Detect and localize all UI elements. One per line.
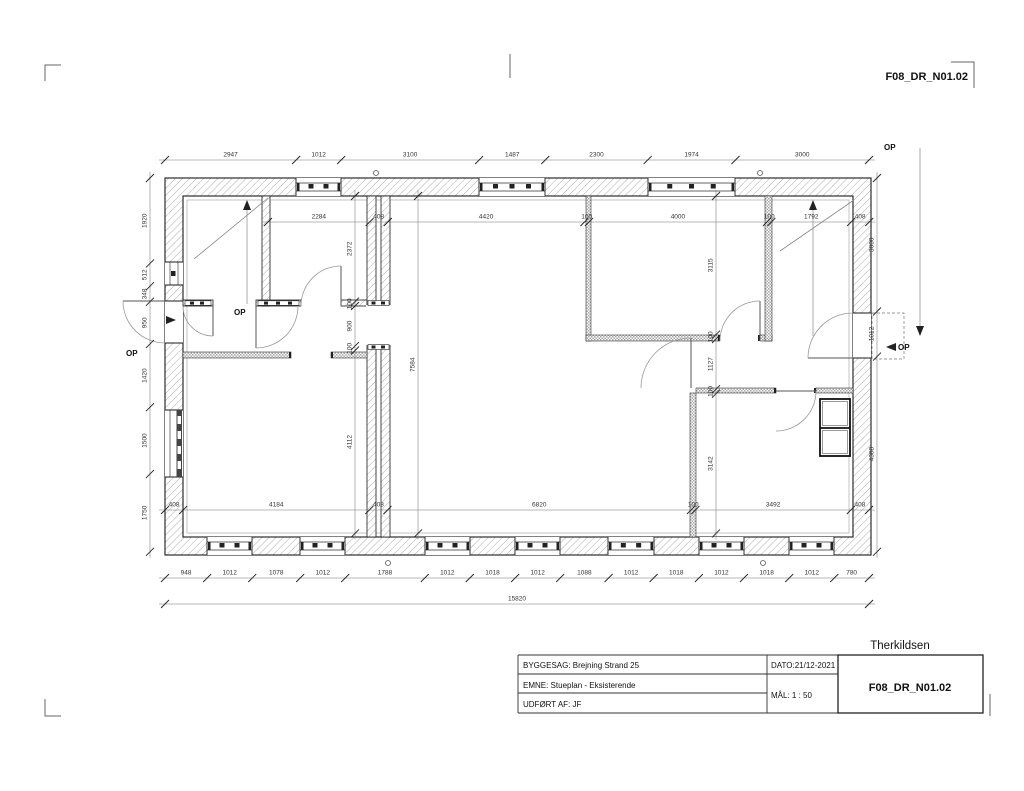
- window: [300, 537, 345, 555]
- reference-circle: [386, 561, 391, 566]
- dim-label-left_outer-0: 1920: [142, 213, 149, 228]
- op-label-left-entry: OP: [126, 349, 138, 358]
- dim-label-left_inner-2: 900: [347, 320, 354, 331]
- dim-label-right_inner-3: 100: [708, 386, 715, 397]
- drawing-number-top: F08_DR_N01.02: [885, 71, 968, 83]
- dim-label-bottom_inner-1: 4184: [269, 502, 284, 509]
- dim-chain-bottom_outer: 9481012107810121788101210181012108810121…: [159, 570, 875, 583]
- dim-label-top_inner-6: 1792: [804, 214, 819, 221]
- dim-label-top_inner-3: 100: [581, 214, 592, 221]
- title-block: Therkildsen BYGGESAG: Brejning Strand 25…: [518, 640, 983, 713]
- reference-circle: [761, 561, 766, 566]
- dim-label-left_outer-2: 348: [142, 288, 149, 299]
- dim-label-right_outer-2: 4388: [869, 447, 876, 462]
- reference-circle: [374, 171, 379, 176]
- dim-label-bottom_inner-2: 408: [373, 502, 384, 509]
- reference-circle: [758, 171, 763, 176]
- dim-label-top_outer-0: 2947: [223, 152, 238, 159]
- window: [608, 537, 654, 555]
- dim-label-bottom_outer-4: 1788: [378, 570, 393, 577]
- company-name: Therkildsen: [870, 640, 929, 652]
- dim-label-right_outer-0: 3000: [869, 237, 876, 252]
- dim-label-bottom_outer-0: 948: [181, 570, 192, 577]
- dim-label-bottom_outer-2: 1078: [269, 570, 284, 577]
- dim-label-bottom_outer-3: 1012: [315, 570, 330, 577]
- dim-label-bottom_outer-8: 1088: [577, 570, 592, 577]
- dim-label-top_inner-4: 4000: [671, 214, 686, 221]
- dim-label-bottom_inner-4: 100: [688, 502, 699, 509]
- dim-label-bottom_outer-12: 1018: [759, 570, 774, 577]
- dim-label-bottom_inner-0: 408: [169, 502, 180, 509]
- dim-label-top_inner-5: 100: [764, 214, 775, 221]
- op-label-left-stair: OP: [234, 308, 246, 317]
- dim-label-bottom_inner-3: 6820: [532, 502, 547, 509]
- dim-label-right_inner-0: 3115: [708, 258, 715, 272]
- floor-plan-svg: 2947101231001487230019743000228440844201…: [0, 0, 1024, 791]
- op-label-exterior-stair: OP: [884, 143, 896, 152]
- dim-label-right_inner-4: 3142: [708, 456, 715, 471]
- interior-heavy-walls: [183, 196, 391, 537]
- dim-label-left_outer-5: 1500: [142, 433, 149, 448]
- window: [296, 178, 341, 196]
- window: [425, 537, 470, 555]
- project-field: BYGGESAG: Brejning Strand 25: [523, 661, 640, 670]
- dim-label-left_inner-4: 4112: [347, 435, 354, 449]
- dim-label-top_outer-1: 1012: [311, 152, 326, 159]
- dim-label-right_inner-1: 100: [708, 331, 715, 342]
- scale-field: MÅL: 1 : 50: [771, 691, 812, 700]
- dim-label-right_inner-2: 1127: [708, 357, 715, 371]
- dim-label-bottom_outer-9: 1012: [624, 570, 639, 577]
- dim-label-top_outer-6: 3000: [795, 152, 810, 159]
- central-wall-opening: [366, 305, 391, 345]
- drawing-sheet: 2947101231001487230019743000228440844201…: [0, 0, 1024, 791]
- dim-chain-top_outer: 2947101231001487230019743000: [159, 152, 875, 165]
- dim-label-bottom_outer-11: 1012: [714, 570, 729, 577]
- dim-label-left_outer-6: 1750: [142, 505, 149, 520]
- dim-label-top_outer-4: 2300: [589, 152, 604, 159]
- subject-field: EMNE: Stueplan - Eksisterende: [523, 681, 636, 690]
- dim-label-bottom_outer-5: 1012: [440, 570, 455, 577]
- interior-light-walls: [183, 196, 853, 537]
- window: [789, 537, 834, 555]
- dim-label-left_outer-1: 512: [142, 269, 149, 280]
- dim-label-hall_depth-0: 7584: [410, 357, 417, 372]
- dim-chain-bottom_inner: 408418440868201003492408: [159, 502, 875, 515]
- dim-chain-bottom_total: 15820: [159, 596, 875, 609]
- dim-label-bottom_total-0: 15820: [508, 596, 526, 603]
- dim-label-top_inner-1: 408: [373, 214, 384, 221]
- dim-label-left_outer-3: 950: [142, 317, 149, 328]
- dim-label-bottom_inner-5: 3492: [766, 502, 781, 509]
- dim-label-bottom_outer-10: 1018: [669, 570, 684, 577]
- dim-label-left_inner-1: 100: [347, 298, 354, 309]
- stair-up-arrow-right: [809, 200, 817, 210]
- dim-label-top_outer-2: 3100: [403, 152, 418, 159]
- stair-up-arrow-left: [243, 200, 251, 210]
- author-field: UDFØRT AF: JF: [523, 700, 581, 709]
- inner-leaf-line: [187, 200, 849, 533]
- dim-chain-left_inner: 23721009001004112: [347, 190, 360, 539]
- dim-label-bottom_outer-6: 1018: [485, 570, 500, 577]
- dim-label-top_outer-3: 1487: [505, 152, 520, 159]
- dim-label-bottom_outer-14: 780: [846, 570, 857, 577]
- dim-label-left_inner-0: 2372: [347, 241, 354, 256]
- dim-label-right_outer-1: 1012: [869, 326, 876, 341]
- window: [648, 178, 735, 196]
- dim-chain-hall_depth: 7584: [410, 190, 423, 539]
- dim-label-left_outer-4: 1420: [142, 368, 149, 383]
- date-field: DATO:21/12-2021: [771, 661, 836, 670]
- dim-label-top_inner-7: 408: [855, 214, 866, 221]
- dim-label-bottom_outer-13: 1012: [805, 570, 820, 577]
- exterior-stair-arrow: [916, 326, 924, 336]
- drawing-number-titleblock: F08_DR_N01.02: [869, 682, 952, 694]
- dim-label-bottom_outer-1: 1012: [222, 570, 237, 577]
- dim-chain-right_inner: 311510011271003142: [708, 190, 721, 539]
- dim-label-bottom_outer-7: 1012: [530, 570, 545, 577]
- dim-label-top_inner-0: 2284: [312, 214, 327, 221]
- dim-chain-top_inner: 2284408442010040001001792408: [262, 214, 875, 227]
- dim-label-left_inner-3: 100: [347, 342, 354, 353]
- window: [479, 178, 545, 196]
- window: [165, 262, 183, 285]
- doors: [123, 266, 904, 431]
- dim-label-bottom_inner-6: 408: [854, 502, 865, 509]
- window: [207, 537, 252, 555]
- dim-label-top_inner-2: 4420: [479, 214, 494, 221]
- window: [515, 537, 560, 555]
- window: [699, 537, 744, 555]
- entry-arrow-right: [886, 343, 896, 351]
- op-label-right-entry: OP: [898, 343, 910, 352]
- dim-chain-left_outer: 1920512348950142015001750: [142, 172, 155, 558]
- fixture-cabinet: [820, 399, 850, 456]
- window: [165, 410, 183, 477]
- dim-label-top_outer-5: 1974: [684, 152, 699, 159]
